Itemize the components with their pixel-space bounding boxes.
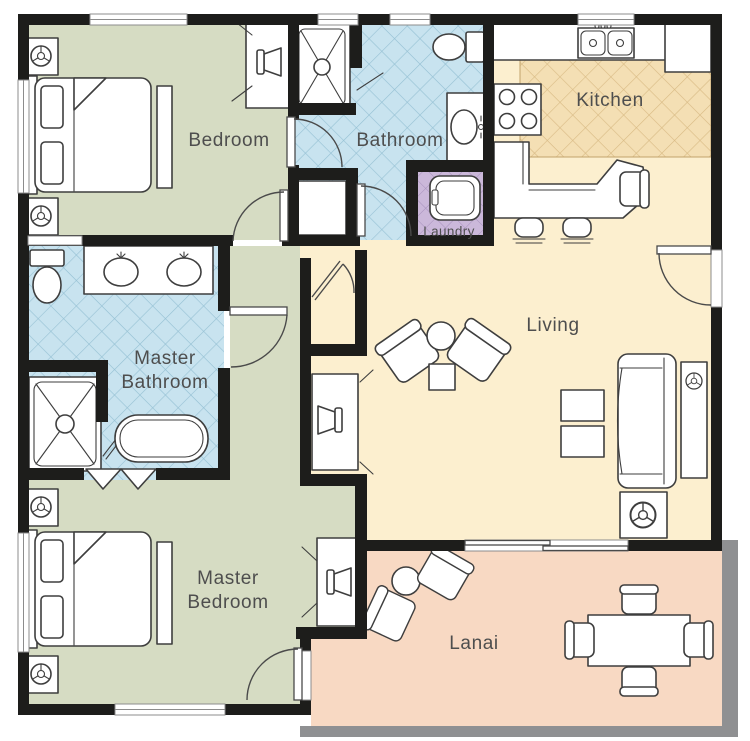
dining-table-icon xyxy=(588,615,690,666)
bathtub-icon xyxy=(115,415,208,462)
sofa-icon xyxy=(618,354,677,488)
room-label-master-bedroom-2: Bedroom xyxy=(187,592,268,613)
end-table-lamp-icon xyxy=(620,492,667,538)
lanai-wall xyxy=(722,540,738,737)
sofa-table-lamp-icon xyxy=(681,362,707,478)
dining-chair-icon xyxy=(565,621,594,659)
dining-chair-icon xyxy=(620,585,658,614)
closet-icon xyxy=(298,181,346,235)
floorplan-page: Bedroom Bathroom Kitchen Laundry Living … xyxy=(0,0,750,741)
room-label-master-bedroom-1: Master xyxy=(197,568,259,589)
bed-icon xyxy=(28,76,151,194)
toilet-icon xyxy=(433,32,484,62)
room-label-lanai: Lanai xyxy=(449,633,499,654)
dining-chair-icon xyxy=(684,621,713,659)
bar-stool-icon xyxy=(513,218,545,243)
bar-chair-icon xyxy=(620,170,649,208)
coffee-table-icon xyxy=(561,390,604,421)
dresser-icon xyxy=(157,86,172,188)
room-label-kitchen: Kitchen xyxy=(576,90,644,111)
double-sink-vanity-icon xyxy=(84,246,213,294)
washer-icon xyxy=(430,176,480,220)
side-table-icon xyxy=(429,364,455,390)
kitchen-sink-icon xyxy=(578,24,634,58)
nightstand-lamp-icon xyxy=(24,489,58,526)
sink-vanity-icon xyxy=(447,93,487,163)
room-label-living: Living xyxy=(526,315,579,336)
round-table-icon xyxy=(427,322,455,350)
patio-table-icon xyxy=(392,567,420,595)
room-label-master-bathroom-2: Bathroom xyxy=(121,372,208,393)
bed-icon xyxy=(28,530,151,648)
nightstand-lamp-icon xyxy=(24,198,58,235)
coffee-table-icon xyxy=(561,426,604,457)
nightstand-lamp-icon xyxy=(24,656,58,693)
room-label-bathroom: Bathroom xyxy=(356,130,443,151)
toilet-icon xyxy=(30,250,64,303)
nightstand-lamp-icon xyxy=(24,38,58,75)
bar-stool-icon xyxy=(561,218,593,243)
dresser-icon xyxy=(157,542,172,644)
floorplan-svg: Bedroom Bathroom Kitchen Laundry Living … xyxy=(0,0,750,741)
room-label-laundry: Laundry xyxy=(423,224,475,239)
lanai-wall xyxy=(300,726,738,737)
dining-chair-icon xyxy=(620,667,658,696)
sliding-door xyxy=(465,540,628,551)
stove-icon xyxy=(494,84,541,135)
room-label-master-bathroom-1: Master xyxy=(134,348,196,369)
room-label-bedroom: Bedroom xyxy=(188,130,269,151)
fridge-icon xyxy=(665,24,711,72)
